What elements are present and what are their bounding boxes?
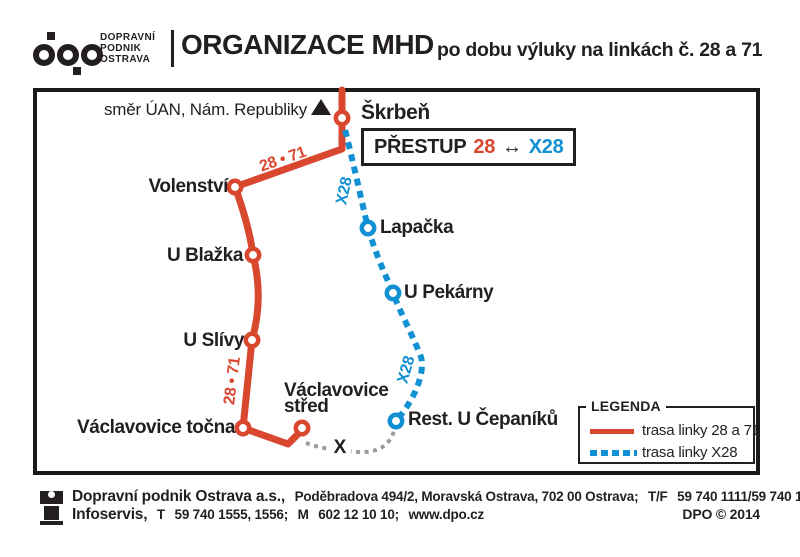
stop-lapacka-marker [362,222,374,234]
stop-volenstvi-marker [229,181,241,193]
transfer-line-x28: X28 [529,136,564,159]
footer-t-label: T [157,507,165,522]
footer-infoservis: Infoservis, [72,506,147,523]
info-icon [40,488,63,525]
footer-m-label: M [298,507,309,522]
info-icon-stem [44,506,59,520]
stop-label-volenstvi: Volenství [110,176,228,198]
legend-label-line-28-71: trasa linky 28 a 71 [642,422,760,439]
closed-section-line [306,422,396,452]
stop-label-rest-u-cepaniku: Rest. U Čepaníků [408,409,558,431]
legend-box: trasa linky 28 a 71 trasa linky X28 [578,406,755,464]
transfer-line-28: 28 [473,136,495,159]
closed-section-x-mark: X [329,437,351,459]
transfer-prefix: PŘESTUP [374,136,466,159]
stop-u-pekarny-marker [387,287,399,299]
stop-u-blazka-marker [247,249,259,261]
legend-swatch-line-x28 [590,450,637,456]
stop-vaclavovice-stred-marker [296,422,308,434]
footer-website-link[interactable]: www.dpo.cz [409,507,485,522]
transfer-arrow-icon: ↔ [502,136,522,159]
info-icon-dot-block [40,491,63,504]
stop-label-skrben: Škrbeň [361,101,430,125]
footer-infoservis-line: Infoservis, T 59 740 1555, 1556; M 602 1… [72,506,484,524]
stop-label-vaclavovice-stred: Václavovice střed [284,383,388,415]
footer-company: Dopravní podnik Ostrava a.s., [72,488,285,505]
legend-title: LEGENDA [586,398,666,414]
info-icon-base [40,521,63,525]
footer-t-numbers: 59 740 1555, 1556; [175,507,289,522]
footer-address-line: Dopravní podnik Ostrava a.s., Poděbradov… [72,488,800,506]
direction-note: směr ÚAN, Nám. Republiky [90,100,307,120]
stop-label-u-blazka: U Blažka [130,245,243,267]
footer-m-numbers: 602 12 10 10; [318,507,399,522]
route-map-canvas [0,0,800,557]
stop-label-vaclavovice-tocna: Václavovice točna [70,417,235,439]
page: DOPRAVNÍ PODNIK OSTRAVA ORGANIZACE MHD p… [0,0,800,557]
stop-u-slivy-marker [246,334,258,346]
footer-copyright: DPO © 2014 [655,506,760,522]
stop-label-u-pekarny: U Pekárny [404,282,493,304]
stop-vaclavovice-tocna-marker [237,422,249,434]
footer-tf-label: T/F [648,489,668,504]
stop-rest-u-cepaniku-marker [390,415,402,427]
transfer-note-box: PŘESTUP 28 ↔ X28 [361,128,576,166]
direction-triangle-icon [311,99,331,115]
legend-swatch-line-28-71 [590,429,634,434]
stop-skrben-marker [336,112,348,124]
stop-label-vaclavovice-stred-line2: střed [284,399,388,415]
footer-address: Poděbradova 494/2, Moravská Ostrava, 702… [295,489,639,504]
footer-tf-numbers: 59 740 1111/59 740 1095; [677,489,800,504]
legend-label-line-x28: trasa linky X28 [642,444,737,461]
stop-label-lapacka: Lapačka [380,217,453,239]
